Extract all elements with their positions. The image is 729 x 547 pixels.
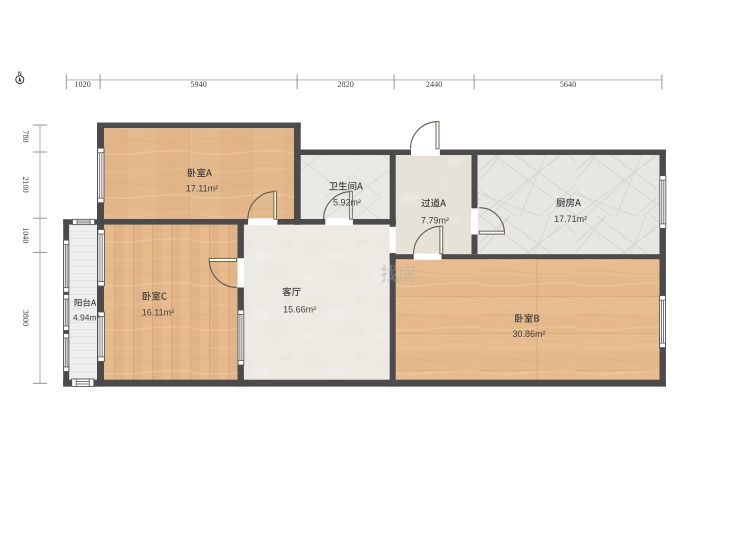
- svg-text:15.66m²: 15.66m²: [283, 305, 316, 315]
- svg-text:5640: 5640: [560, 80, 576, 89]
- svg-text:2440: 2440: [426, 80, 442, 89]
- svg-text:17.11m²: 17.11m²: [186, 183, 218, 193]
- svg-text:2820: 2820: [337, 80, 353, 89]
- svg-text:780: 780: [21, 130, 30, 142]
- svg-text:2100: 2100: [21, 176, 30, 192]
- svg-text:1020: 1020: [74, 80, 90, 89]
- svg-text:5940: 5940: [190, 80, 206, 89]
- svg-text:5.92m²: 5.92m²: [333, 197, 361, 207]
- svg-text:7.79m²: 7.79m²: [421, 216, 449, 226]
- svg-text:30.86m²: 30.86m²: [512, 329, 545, 339]
- svg-text:1040: 1040: [21, 227, 30, 243]
- svg-text:16.11m²: 16.11m²: [142, 308, 174, 318]
- svg-text:3800: 3800: [21, 310, 30, 326]
- svg-text:4.94m²: 4.94m²: [73, 313, 100, 323]
- svg-text:17.71m²: 17.71m²: [554, 214, 587, 224]
